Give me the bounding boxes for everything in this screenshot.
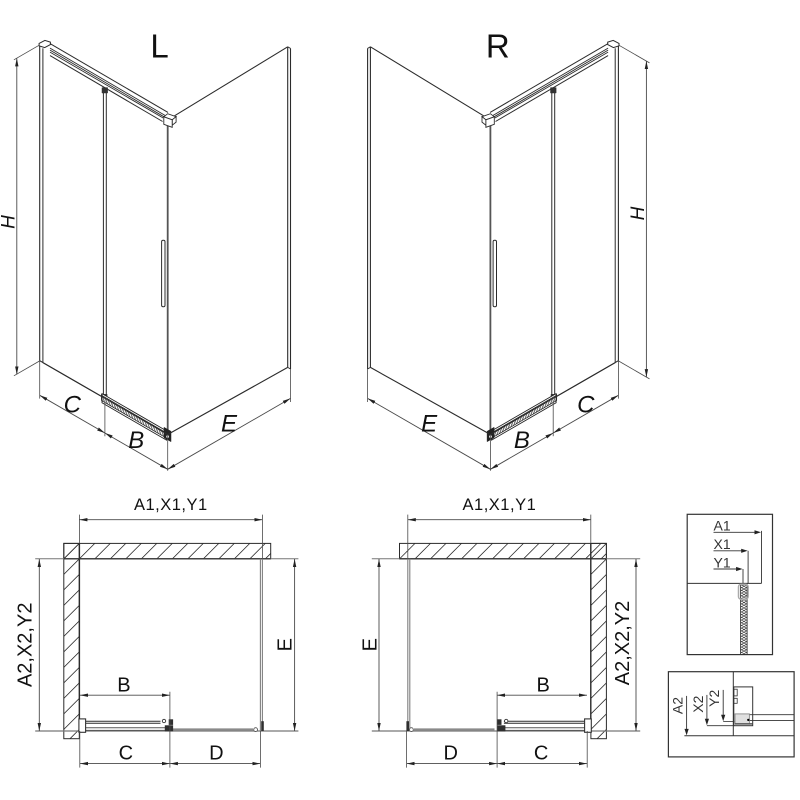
svg-text:R: R <box>486 28 510 65</box>
svg-text:H: H <box>628 206 649 220</box>
svg-text:C: C <box>119 743 133 765</box>
svg-text:B: B <box>117 675 130 697</box>
svg-text:X1: X1 <box>714 536 731 552</box>
svg-text:E: E <box>359 638 381 651</box>
svg-text:C: C <box>534 743 548 765</box>
svg-text:Y2: Y2 <box>706 690 722 707</box>
svg-text:X2: X2 <box>690 695 706 712</box>
svg-text:Y1: Y1 <box>714 554 731 570</box>
svg-text:L: L <box>150 28 168 65</box>
svg-text:B: B <box>514 427 530 454</box>
svg-text:A1,X1,Y1: A1,X1,Y1 <box>463 496 537 514</box>
svg-text:E: E <box>221 411 238 438</box>
svg-text:B: B <box>537 675 550 697</box>
svg-text:A2,X2,Y2: A2,X2,Y2 <box>612 601 634 686</box>
svg-text:D: D <box>443 743 457 765</box>
svg-text:E: E <box>275 638 297 651</box>
svg-text:A1: A1 <box>714 518 731 534</box>
svg-text:C: C <box>64 391 82 418</box>
svg-text:E: E <box>421 411 438 438</box>
svg-text:B: B <box>128 427 144 454</box>
svg-text:A1,X1,Y1: A1,X1,Y1 <box>134 496 208 514</box>
svg-text:C: C <box>577 391 595 418</box>
svg-text:A2: A2 <box>670 697 686 714</box>
svg-text:D: D <box>209 743 223 765</box>
svg-text:A2,X2,Y2: A2,X2,Y2 <box>15 603 37 688</box>
svg-text:H: H <box>0 215 20 229</box>
